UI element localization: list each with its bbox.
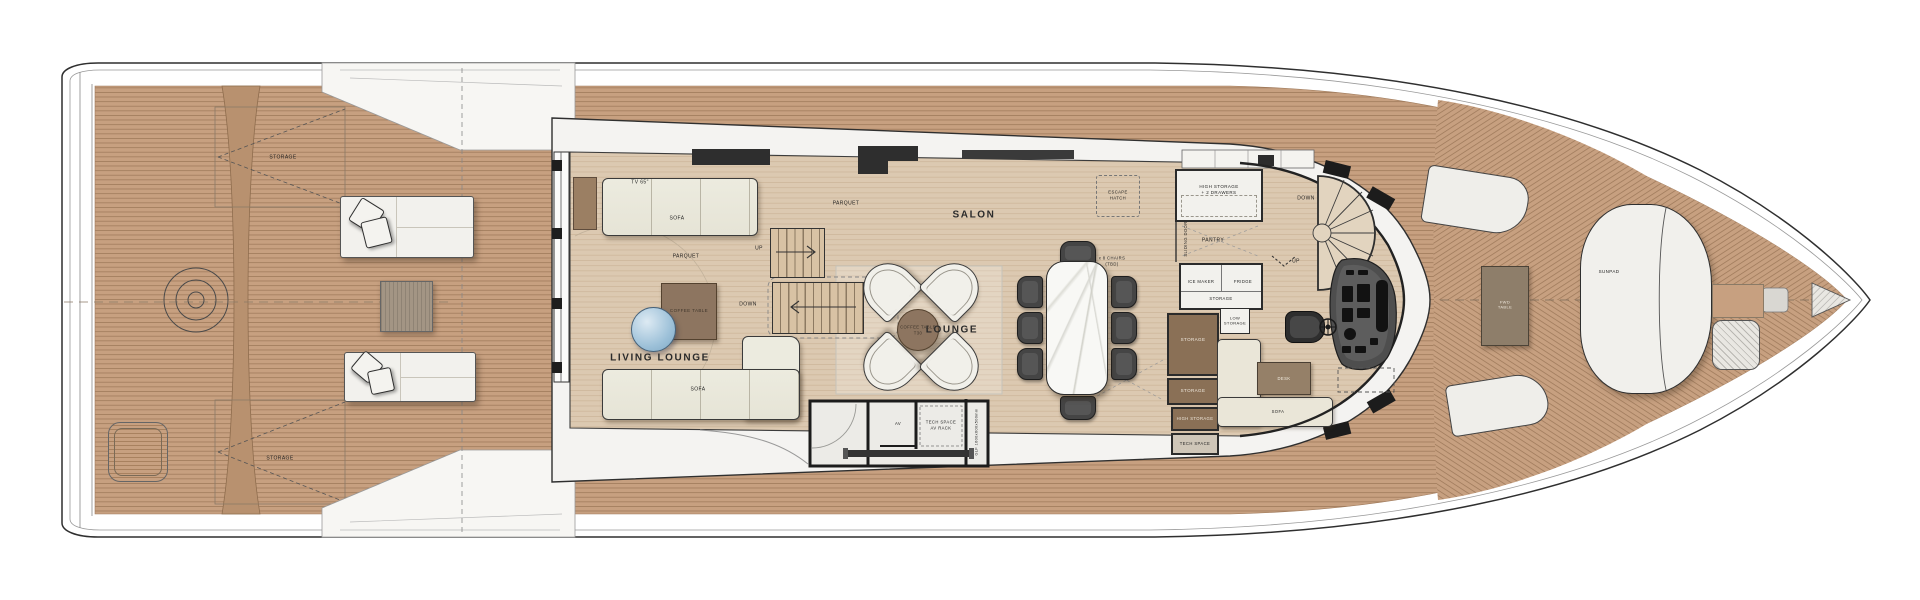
label-line: + 2 DRAWERS — [1202, 190, 1237, 196]
cabinet-divider — [1221, 265, 1222, 291]
label-coffee-table-round: COFFEE TABLE T30 — [900, 324, 936, 335]
label-line: T30 — [914, 330, 922, 336]
pillow — [367, 367, 395, 395]
label-sliding-door: SLIDING DOOR — [1183, 221, 1189, 256]
main-sofa — [602, 178, 758, 236]
deck-hatch — [108, 422, 168, 482]
label-storage-aft-bottom: STORAGE — [266, 456, 293, 463]
label-fwd-table: FWD TABLE — [1498, 300, 1512, 311]
sunpad — [1580, 204, 1712, 394]
label-tech-space-av: TECH SPACE AV RACK — [926, 419, 956, 430]
label-chairs-note: x 8 CHAIRS (TBD) — [1099, 255, 1126, 266]
label-ice-maker: ICE MAKER — [1188, 279, 1215, 285]
stairs-down — [772, 282, 864, 334]
label-up-fwd: UP — [1292, 259, 1300, 266]
label-high-storage-2: HIGH STORAGE — [1177, 416, 1214, 422]
label-down-fwd: DOWN — [1297, 196, 1314, 203]
dining-chair — [1017, 276, 1043, 308]
side-cabinet — [573, 177, 597, 230]
label-pantry: PANTRY — [1202, 238, 1224, 245]
label-high-storage: HIGH STORAGE + 2 DRAWERS — [1199, 184, 1238, 196]
label-tech-space: TECH SPACE — [1180, 441, 1210, 447]
label-line: HATCH — [1110, 195, 1126, 201]
aft-sofa — [602, 369, 800, 420]
cabinet-divider — [1181, 291, 1261, 292]
dining-chair — [1111, 312, 1137, 344]
label-living-lounge: LIVING LOUNGE — [610, 351, 710, 365]
label-sofa-aft: SOFA — [691, 387, 706, 394]
label-tv: TV 65" — [631, 180, 649, 187]
sun-lounger — [340, 196, 474, 258]
label-up-mid: UP — [755, 246, 763, 253]
label-coffee-table: COFFEE TABLE — [670, 308, 708, 314]
label-line: TABLE — [1498, 305, 1512, 310]
cabinet-dashed-inner — [1181, 195, 1257, 217]
label-line: AV RACK — [931, 425, 952, 431]
dining-table-marble — [1046, 261, 1108, 395]
aft-glass-door — [552, 152, 569, 382]
label-storage-1: STORAGE — [1181, 337, 1206, 343]
label-low-storage: LOW STORAGE — [1224, 316, 1246, 327]
label-av: AV — [895, 421, 901, 427]
dining-chair — [1017, 348, 1043, 380]
helm-chair-seat — [1290, 316, 1320, 338]
deck-ottoman-table — [380, 281, 433, 332]
label-sunpad: SUNPAD — [1599, 269, 1620, 275]
label-parquet-fwd: PARQUET — [833, 201, 860, 208]
label-line: (TBD) — [1105, 261, 1118, 267]
pantry-appliance-cabinet — [1179, 263, 1263, 310]
label-line: STORAGE — [1224, 321, 1246, 326]
label-sofa-main: SOFA — [670, 216, 685, 223]
stairs-up — [770, 228, 825, 278]
label-down-mid: DOWN — [739, 302, 756, 309]
label-desk: DESK — [1277, 376, 1290, 382]
label-salon: SALON — [953, 208, 996, 222]
label-locker-dim: GLF 1600x600x500mm — [974, 409, 979, 456]
windlass-fitting — [1762, 288, 1788, 312]
label-storage-pantry: STORAGE — [1209, 296, 1232, 302]
dining-chair — [1017, 312, 1043, 344]
sun-lounger — [344, 352, 476, 402]
passerelle — [845, 450, 971, 457]
dining-chair — [1111, 348, 1137, 380]
pillow — [360, 216, 393, 249]
dining-chair — [1111, 276, 1137, 308]
yacht-main-deck-plan: STORAGE STORAGE TV 65" SOFA PARQUET PARQ… — [0, 0, 1920, 600]
label-sofa-helm: SOFA — [1272, 409, 1285, 415]
deck-hatch-inner — [114, 428, 162, 476]
label-fridge: FRIDGE — [1234, 279, 1252, 285]
anchor-locker-hatch — [1712, 320, 1760, 370]
dining-chair — [1060, 396, 1096, 420]
label-parquet-aft: PARQUET — [673, 254, 700, 261]
storage-cabinet — [1167, 313, 1219, 376]
label-escape-hatch: ESCAPE HATCH — [1108, 189, 1127, 200]
helm-chair — [1285, 311, 1325, 343]
label-storage-aft-top: STORAGE — [269, 155, 296, 162]
label-storage-2: STORAGE — [1181, 388, 1206, 394]
windlass-base — [1712, 284, 1764, 318]
